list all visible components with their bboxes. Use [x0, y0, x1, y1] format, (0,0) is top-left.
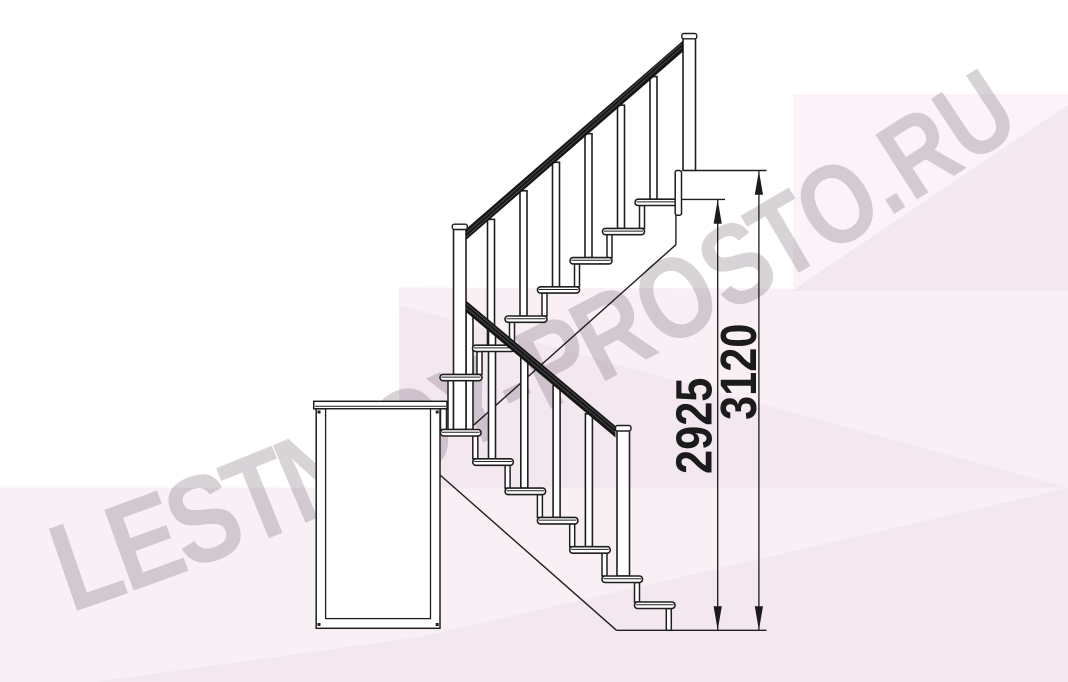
svg-text:3120: 3120 — [711, 324, 768, 420]
